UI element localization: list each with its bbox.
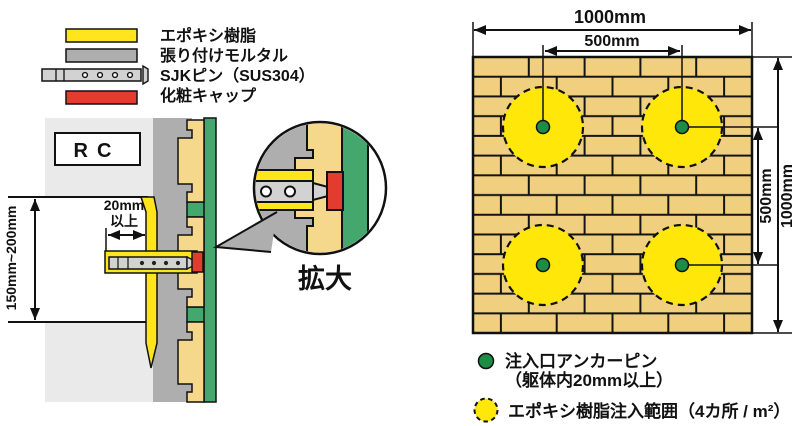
note-anchor-pin-dot <box>479 354 494 369</box>
width-dim-label: 1000mm <box>574 7 646 27</box>
note-anchor-pin-line2: （躯体内20mm以上） <box>505 370 673 390</box>
diagram-canvas: エポキシ樹脂 張り付けモルタル SJKピン（SUS304） 化粧キャップ 150… <box>0 0 800 426</box>
pin-hole-4 <box>176 261 180 265</box>
anchor-pin-dot-4 <box>676 259 689 272</box>
pin-hole-3 <box>164 261 168 265</box>
mag-pin-hole-2 <box>285 187 295 197</box>
cap-swatch <box>66 91 137 104</box>
magnifier-label: 拡大 <box>298 264 352 294</box>
pin-swatch-body <box>42 69 141 81</box>
embed-depth-value: 20mm <box>104 197 144 213</box>
rc-label: RC <box>74 140 121 162</box>
pin-body <box>109 257 187 269</box>
mag-pin-cap <box>327 172 343 210</box>
repair-method-diagram: エポキシ樹脂 張り付けモルタル SJKピン（SUS304） 化粧キャップ 150… <box>0 0 800 426</box>
mag-pin-tip <box>313 183 328 200</box>
anchor-pin-dot-2 <box>676 121 689 134</box>
pin-swatch-hole-2 <box>98 73 103 78</box>
legend-label-cap: 化粧キャップ <box>160 86 257 105</box>
anchor-pin-dot-3 <box>537 259 550 272</box>
mag-pin-body <box>248 181 313 202</box>
tile-joint-2 <box>187 307 206 322</box>
legend-label-mortar: 張り付けモルタル <box>160 46 288 65</box>
finish-layer <box>204 118 216 402</box>
legend-label-sjk-pin: SJKピン（SUS304） <box>160 67 315 85</box>
pin-cap <box>192 252 203 272</box>
note-anchor-pin-line1: 注入口アンカーピン <box>505 351 657 371</box>
mag-pin-hole-1 <box>261 187 271 197</box>
embed-depth-suffix: 以上 <box>110 213 138 229</box>
section-view: 150mm~200mm 20mm 以上 RC <box>3 118 216 402</box>
height-dim-label: 1000mm <box>779 164 796 228</box>
material-legend: エポキシ樹脂 張り付けモルタル SJKピン（SUS304） 化粧キャップ <box>42 26 315 105</box>
note-epoxy-circle <box>475 399 498 422</box>
legend-label-epoxy: エポキシ樹脂 <box>160 26 256 45</box>
pin-swatch-hole-3 <box>113 73 118 78</box>
pin-hole-1 <box>140 261 144 265</box>
elevation-view: 1000mm 500mm 500mm 1000mm <box>473 7 796 333</box>
spacing-h-dim-label: 500mm <box>584 33 639 50</box>
pin-swatch-hole-1 <box>83 73 88 78</box>
note-epoxy-range: エポキシ樹脂注入範囲（4カ所 / m²） <box>508 401 790 421</box>
pin-swatch-hole-4 <box>128 73 133 78</box>
pin-swatch-tip <box>143 66 148 84</box>
epoxy-swatch <box>66 29 137 42</box>
magnifier: 拡大 <box>216 120 386 294</box>
notes-legend: 注入口アンカーピン （躯体内20mm以上） エポキシ樹脂注入範囲（4カ所 / m… <box>475 351 791 422</box>
spacing-v-dim-label: 500mm <box>758 168 775 223</box>
tile-joint-1 <box>187 202 206 217</box>
anchor-pin-dot-1 <box>537 121 550 134</box>
sjk-pin-swatch <box>42 66 148 84</box>
pitch-dim-label: 150mm~200mm <box>3 206 19 311</box>
pin-hole-2 <box>152 261 156 265</box>
mortar-swatch <box>66 49 137 62</box>
